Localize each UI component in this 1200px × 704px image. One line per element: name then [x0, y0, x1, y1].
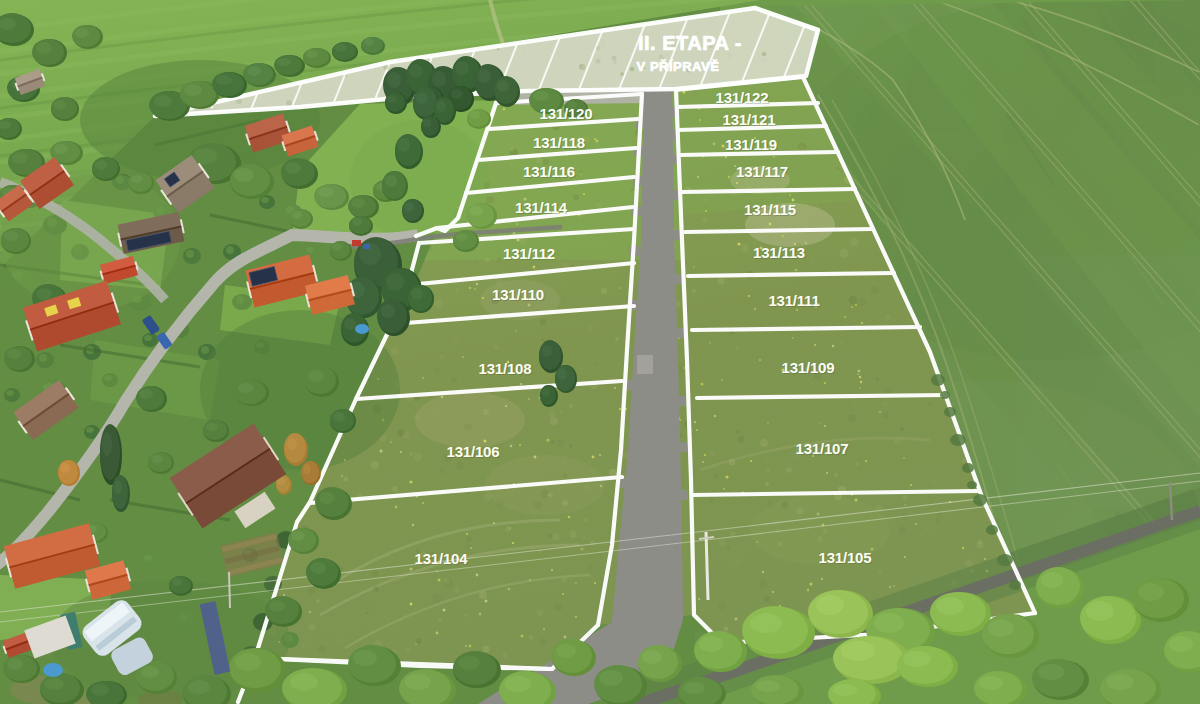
svg-text:131/109: 131/109 [782, 359, 835, 376]
svg-text:131/104: 131/104 [415, 550, 469, 567]
svg-text:131/116: 131/116 [523, 163, 575, 180]
svg-text:131/108: 131/108 [479, 360, 532, 377]
svg-text:131/119: 131/119 [725, 136, 777, 153]
svg-text:V PŘÍPRAVĚ: V PŘÍPRAVĚ [637, 59, 720, 74]
svg-text:131/110: 131/110 [492, 286, 544, 303]
svg-text:131/114: 131/114 [515, 199, 568, 216]
svg-text:131/105: 131/105 [819, 549, 872, 566]
svg-text:131/117: 131/117 [736, 163, 788, 180]
svg-text:131/106: 131/106 [447, 443, 500, 460]
svg-text:131/121: 131/121 [723, 111, 776, 128]
svg-text:131/120: 131/120 [540, 105, 593, 122]
svg-text:131/113: 131/113 [753, 244, 805, 261]
svg-text:131/115: 131/115 [744, 201, 796, 218]
svg-text:131/118: 131/118 [533, 134, 585, 151]
svg-text:II. ETAPA -: II. ETAPA - [638, 32, 742, 54]
svg-text:131/112: 131/112 [503, 245, 555, 262]
svg-text:131/111: 131/111 [768, 292, 819, 309]
svg-text:131/122: 131/122 [716, 89, 769, 106]
svg-text:131/107: 131/107 [796, 440, 849, 457]
